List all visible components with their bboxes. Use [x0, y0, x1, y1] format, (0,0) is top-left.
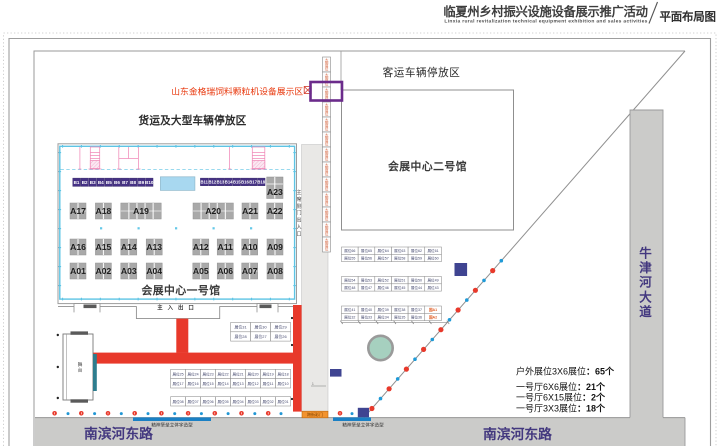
svg-text:展位48: 展位48 — [344, 285, 355, 290]
svg-text:A21: A21 — [242, 206, 258, 216]
svg-text:展位66: 展位66 — [344, 248, 355, 253]
svg-text:展位33: 展位33 — [361, 314, 372, 319]
svg-text:A19: A19 — [133, 206, 149, 216]
svg-text:B14: B14 — [225, 180, 233, 185]
svg-text:展位47: 展位47 — [361, 285, 372, 290]
svg-text:南滨河东路: 南滨河东路 — [483, 426, 552, 442]
svg-text:席: 席 — [296, 195, 301, 203]
svg-text:口: 口 — [296, 230, 301, 237]
svg-text:会展中心二号馆: 会展中心二号馆 — [388, 159, 467, 173]
svg-text:展位40: 展位40 — [361, 307, 372, 312]
svg-text:客运车辆停放区: 客运车辆停放区 — [383, 66, 461, 79]
svg-text:展位19: 展位19 — [263, 371, 274, 376]
svg-text:A03: A03 — [121, 266, 137, 276]
svg-text:展位26: 展位26 — [275, 334, 287, 339]
svg-text:展位37: 展位37 — [411, 307, 422, 312]
svg-text:B6: B6 — [114, 180, 120, 185]
svg-text:位: 位 — [325, 127, 329, 132]
svg-text:展位49: 展位49 — [427, 278, 438, 283]
svg-text:展位20: 展位20 — [248, 371, 259, 376]
svg-text:展位60: 展位60 — [427, 255, 438, 260]
svg-text:A23: A23 — [267, 187, 283, 197]
svg-text:A05: A05 — [193, 266, 209, 276]
svg-text:展位06: 展位06 — [203, 399, 214, 404]
svg-text:展位17: 展位17 — [173, 381, 184, 386]
svg-text:B11: B11 — [200, 180, 208, 185]
svg-text:展位24: 展位24 — [188, 371, 199, 376]
svg-text:精神堡垒立体字造型: 精神堡垒立体字造型 — [151, 422, 193, 429]
svg-text:展位50: 展位50 — [411, 278, 422, 283]
svg-text:展位54: 展位54 — [344, 278, 355, 283]
svg-text:展位63: 展位63 — [394, 248, 405, 253]
svg-text:展位13: 展位13 — [233, 381, 244, 386]
svg-text:会展中心一号馆: 会展中心一号馆 — [141, 283, 220, 297]
svg-text:B2: B2 — [82, 180, 88, 185]
svg-text:展位41: 展位41 — [344, 307, 355, 312]
svg-text:津: 津 — [639, 260, 652, 275]
svg-text:精神堡垒立体字造型: 精神堡垒立体字造型 — [342, 422, 384, 429]
svg-text:展位16: 展位16 — [188, 381, 199, 386]
svg-text:A10: A10 — [242, 242, 258, 252]
svg-text:展位02: 展位02 — [263, 399, 274, 404]
svg-text:展位53: 展位53 — [361, 278, 372, 283]
svg-text:展位08: 展位08 — [173, 399, 184, 404]
svg-text:A01: A01 — [70, 266, 86, 276]
svg-text:展位11: 展位11 — [263, 381, 274, 386]
svg-text:展位04: 展位04 — [233, 399, 244, 404]
svg-text:B3: B3 — [90, 180, 96, 185]
svg-text:展位52: 展位52 — [378, 278, 389, 283]
svg-text:展位58: 展位58 — [394, 255, 405, 260]
svg-text:主: 主 — [296, 188, 301, 196]
svg-text:位: 位 — [325, 217, 329, 222]
svg-text:B13: B13 — [217, 180, 225, 185]
svg-text:B4: B4 — [98, 180, 104, 185]
svg-text:位: 位 — [325, 202, 329, 207]
svg-text:展位38: 展位38 — [394, 307, 405, 312]
svg-text:展位43: 展位43 — [427, 285, 438, 290]
svg-text:展位55: 展位55 — [344, 255, 355, 260]
svg-text:位: 位 — [325, 112, 329, 117]
svg-text:B15: B15 — [233, 180, 241, 185]
svg-text:一号厅6X6展位：21个: 一号厅6X6展位：21个 — [516, 381, 606, 392]
svg-text:B9: B9 — [138, 180, 144, 185]
svg-text:跨街彩门: 跨街彩门 — [307, 411, 323, 417]
svg-text:展位15: 展位15 — [203, 381, 214, 386]
svg-text:展位32: 展位32 — [344, 314, 355, 319]
svg-text:南滨河东路: 南滨河东路 — [84, 426, 153, 442]
svg-text:A11: A11 — [218, 242, 234, 252]
svg-text:展位27: 展位27 — [255, 334, 267, 339]
svg-text:A16: A16 — [70, 242, 86, 252]
svg-text:入: 入 — [296, 225, 301, 231]
svg-text:展位21: 展位21 — [233, 371, 244, 376]
svg-text:河: 河 — [639, 275, 652, 290]
svg-text:出: 出 — [296, 216, 301, 224]
svg-text:门: 门 — [296, 209, 301, 217]
svg-text:展位25: 展位25 — [173, 371, 184, 376]
svg-text:A15: A15 — [96, 242, 112, 252]
svg-text:展位29: 展位29 — [275, 325, 287, 330]
svg-text:A20: A20 — [205, 206, 221, 216]
svg-text:平面布局图: 平面布局图 — [660, 10, 717, 24]
svg-text:展位01: 展位01 — [278, 399, 289, 404]
svg-text:A02: A02 — [96, 266, 112, 276]
svg-text:展位18: 展位18 — [278, 371, 289, 376]
svg-text:展位23: 展位23 — [203, 371, 214, 376]
svg-text:展位03: 展位03 — [248, 399, 259, 404]
svg-text:A14: A14 — [121, 242, 137, 252]
svg-text:B1: B1 — [74, 180, 80, 185]
svg-text:台: 台 — [78, 367, 83, 374]
svg-text:展位44: 展位44 — [411, 285, 422, 290]
svg-text:展位64: 展位64 — [378, 248, 389, 253]
svg-text:位: 位 — [325, 172, 329, 177]
svg-text:展位14: 展位14 — [218, 381, 229, 386]
svg-text:山东金格瑞饲料颗粒机设备展示区: 山东金格瑞饲料颗粒机设备展示区 — [171, 86, 303, 97]
svg-text:B5: B5 — [106, 180, 112, 185]
svg-text:展位35: 展位35 — [394, 314, 405, 319]
svg-text:展位22: 展位22 — [218, 371, 229, 376]
svg-text:位: 位 — [325, 247, 329, 252]
svg-text:一号厅3X3展位：18个: 一号厅3X3展位：18个 — [516, 403, 606, 414]
svg-text:A08: A08 — [267, 266, 283, 276]
svg-text:A12: A12 — [193, 242, 209, 252]
svg-text:展位57: 展位57 — [378, 255, 389, 260]
svg-text:展位36: 展位36 — [411, 314, 422, 319]
svg-text:展位05: 展位05 — [218, 399, 229, 404]
svg-text:A06: A06 — [217, 266, 233, 276]
svg-text:B7: B7 — [122, 180, 128, 185]
svg-text:展位59: 展位59 — [411, 255, 422, 260]
svg-text:位: 位 — [325, 67, 329, 72]
svg-text:B18: B18 — [257, 180, 265, 185]
svg-text:位: 位 — [325, 187, 329, 192]
svg-text:展位61: 展位61 — [427, 248, 438, 253]
svg-text:展位45: 展位45 — [394, 285, 405, 290]
svg-text:一号厅6X15展位：2个: 一号厅6X15展位：2个 — [516, 392, 606, 403]
svg-text:展位12: 展位12 — [248, 381, 259, 386]
svg-text:侧: 侧 — [296, 202, 301, 210]
svg-text:B12: B12 — [209, 180, 217, 185]
svg-text:A13: A13 — [146, 242, 162, 252]
svg-text:展位28: 展位28 — [235, 334, 247, 339]
svg-text:Linxia rural revitalization te: Linxia rural revitalization technical eq… — [444, 19, 647, 25]
svg-text:道: 道 — [639, 304, 652, 319]
svg-text:A17: A17 — [70, 206, 86, 216]
svg-text:展位34: 展位34 — [378, 314, 389, 319]
svg-text:B8: B8 — [130, 180, 136, 185]
svg-text:展位39: 展位39 — [378, 307, 389, 312]
svg-text:B10: B10 — [145, 180, 154, 185]
svg-text:A18: A18 — [96, 206, 112, 216]
svg-text:位: 位 — [325, 142, 329, 147]
svg-text:B16: B16 — [241, 180, 249, 185]
svg-text:主入出口: 主入出口 — [157, 303, 199, 311]
svg-text:展位31: 展位31 — [235, 325, 247, 330]
svg-text:位: 位 — [325, 232, 329, 237]
svg-text:展位46: 展位46 — [378, 285, 389, 290]
svg-text:B17: B17 — [249, 180, 257, 185]
svg-text:位: 位 — [325, 157, 329, 162]
svg-text:牛: 牛 — [639, 246, 652, 261]
svg-text:国A1: 国A1 — [429, 307, 437, 312]
svg-text:A04: A04 — [146, 266, 162, 276]
svg-text:临夏州乡村振兴设施设备展示推广活动: 临夏州乡村振兴设施设备展示推广活动 — [443, 4, 648, 19]
svg-text:展位30: 展位30 — [255, 325, 268, 330]
svg-text:展位56: 展位56 — [361, 255, 372, 260]
svg-text:展位62: 展位62 — [411, 248, 422, 253]
svg-text:展位10: 展位10 — [278, 381, 289, 386]
svg-text:展位51: 展位51 — [394, 278, 405, 283]
svg-text:A07: A07 — [242, 266, 258, 276]
svg-text:大: 大 — [639, 289, 652, 304]
svg-text:展位07: 展位07 — [188, 399, 199, 404]
svg-text:户外展位3X6展位：65个: 户外展位3X6展位：65个 — [516, 366, 615, 377]
svg-text:A22: A22 — [267, 206, 283, 216]
svg-text:展位65: 展位65 — [361, 248, 372, 253]
svg-text:A09: A09 — [267, 242, 283, 252]
svg-text:1: 1 — [312, 382, 314, 386]
svg-text:国A2: 国A2 — [429, 314, 437, 319]
svg-text:货运及大型车辆停放区: 货运及大型车辆停放区 — [139, 114, 247, 127]
